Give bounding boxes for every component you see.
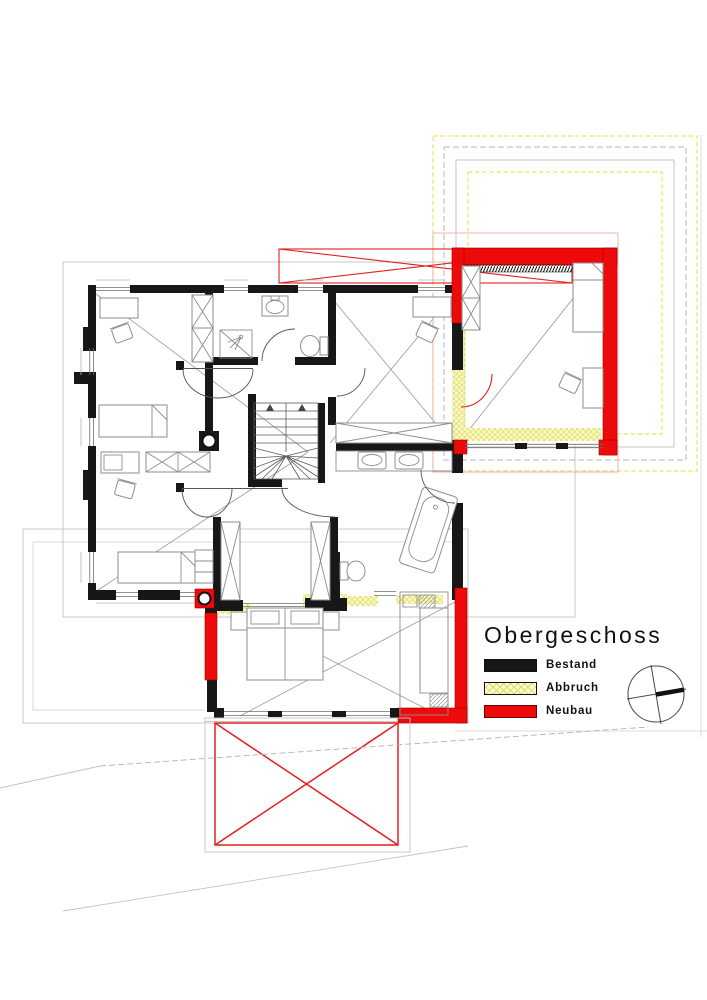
compass-icon [626,663,688,727]
desk-new-room [583,368,603,408]
nightstand-left [231,612,247,630]
chair-bottom-left [113,479,136,500]
desk-top-left [100,298,138,318]
shower-room-door-arc [262,329,295,361]
column-round-new [199,593,211,605]
bedroom-door-arc [337,368,365,396]
double-bed [231,608,339,680]
bathroom-vanity [336,451,452,471]
double-door-closet-right [207,489,232,517]
bestand-label: Bestand [546,659,597,671]
closet-wardrobes [221,522,330,600]
chair-top-left [110,322,134,344]
bestand-swatch [484,659,537,672]
neubau-swatch [484,705,537,718]
stair-direction-arrow-2 [298,404,306,411]
abbruch-label: Abbruch [546,682,599,694]
wardrobe-top-left [192,295,213,362]
wardrobe-new-room [462,266,480,330]
bathtub [399,486,459,574]
dresser-bottom-left [101,452,139,473]
nightstand-right [323,612,339,630]
column-round-existing [203,435,216,448]
double-door-closet-left [182,489,207,517]
desk-bedroom [413,297,451,317]
floor-plan-page: Obergeschoss Bestand Abbruch Neubau [0,0,707,1000]
bed-bottom-left [118,550,213,583]
abbruch-swatch [484,682,537,695]
stair-direction-arrow [266,404,274,411]
stair-door-arc [282,488,335,517]
floor-plan-drawing [0,0,707,1000]
wardrobe-bottom-left [146,452,210,472]
north-needle [656,690,684,695]
toilet-bathroom [340,561,365,581]
plan-title: Obergeschoss [484,622,704,649]
shower [220,330,252,358]
chair-bedroom [415,321,440,344]
new-balcony-bottom [205,718,410,852]
toilet [301,336,329,357]
staircase [254,403,318,479]
site-boundary-dashed [100,727,648,766]
neubau-label: Neubau [546,705,593,717]
double-door-hall-right [218,369,253,398]
bed-new-room [573,263,603,332]
bed-mid-left [99,405,167,437]
sideboard-bedroom [336,423,452,443]
sink-shower-room [262,296,288,316]
